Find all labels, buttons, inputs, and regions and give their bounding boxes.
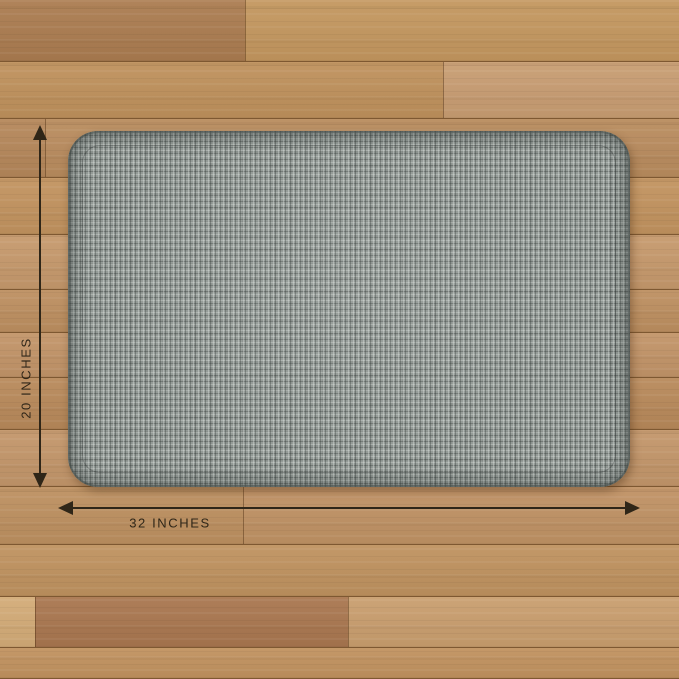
- height-dimension-label: 20 INCHES: [19, 337, 34, 419]
- floor-board: [0, 62, 443, 118]
- mat: [68, 131, 630, 487]
- width-dimension-line: [70, 507, 628, 509]
- arrow-right-icon: [625, 501, 640, 515]
- product-image: 20 INCHES 32 INCHES: [0, 0, 679, 679]
- floor-board: [0, 545, 679, 596]
- floor-board: [245, 0, 679, 61]
- arrow-down-icon: [33, 473, 47, 488]
- floor-board: [35, 597, 348, 647]
- floor-board: [243, 487, 679, 544]
- floor-plank-row: [0, 545, 679, 597]
- floor-board: [0, 0, 245, 61]
- floor-board: [0, 597, 35, 647]
- floor-plank-row: [0, 597, 679, 648]
- floor-board: [0, 648, 679, 678]
- floor-board: [348, 597, 679, 647]
- floor-plank-row: [0, 487, 679, 545]
- height-dimension-line: [39, 138, 41, 474]
- floor-plank-row: [0, 0, 679, 62]
- floor-plank-row: [0, 62, 679, 119]
- mat-surface-bevel: [82, 145, 616, 473]
- floor-plank-row: [0, 648, 679, 679]
- width-dimension-label: 32 INCHES: [129, 516, 211, 531]
- floor-board: [443, 62, 679, 118]
